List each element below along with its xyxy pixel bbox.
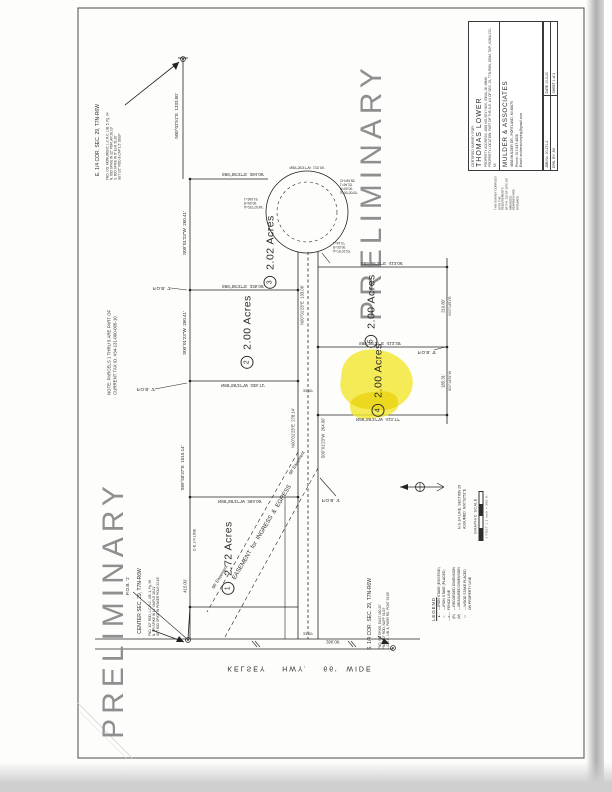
parcel-label-1: 12.72 Acres [222,521,235,595]
survey-annotation: CENTER SEC. 29, T7N-R6W [137,568,144,633]
parcel-label-5: 52.00 Acres [365,274,378,348]
survey-annotation: N89°58'37"W 335.71' [221,382,265,388]
parcel-label-3: 32.02 Acres [264,215,277,289]
parcel-number: 3 [264,276,277,289]
survey-annotation: N89°58'37"W 413.77' [356,416,400,422]
survey-annotation: P.O.B. '5' [418,349,437,355]
survey-annotation: NOTE: PARCELS 1 THRU 5 ARE PART OF CURRE… [106,295,117,395]
survey-annotation: 210.80' [440,299,445,313]
survey-annotation: 415.00' [182,579,187,593]
survey-annotation: Δ=76°31'23" R=33.00' L=44.07' [333,241,357,253]
survey-annotation: N89°58'37"W 394.06' [218,498,262,504]
survey-annotation: N00°02'51"E 1333.00' [174,93,180,138]
survey-annotation: 266.06' [326,639,340,644]
survey-annotation: E. 1/4 COR. SEC. 29, T7N-R6W [95,104,102,176]
survey-annotation: S89°58'37"E 1015.14' [180,446,186,491]
parcel-number: 2 [241,356,254,369]
parcel-number: 5 [365,335,378,348]
survey-annotation: THIS SURVEY COMPLIES WITH THE REQUIREMEN… [494,174,519,210]
survey-annotation: C-E 1/4 LINE [193,529,198,551]
survey-annotation: S00°01'23"W 260.41' [182,211,188,255]
survey-annotation: Δ=90°00'00" R=60.00' L=94.25' CH=84.85' [340,178,366,195]
survey-annotation: FND. RR SPIKE, EAST 150.29' FND. 1/2" RO… [378,579,390,649]
parcel-acreage: 2.00 Acres [365,274,377,329]
survey-annotation: N89°58'37"W 120.06' [289,165,324,170]
survey-annotation: N-S 1/4 LINE, SECTION 29 ASSUMED: N00°02… [457,471,466,529]
survey-annotation: P.O.B. '4' [322,497,341,503]
parcel-acreage: 2.72 Acres [222,521,234,576]
survey-annotation: N00°01'23"E 278.14' [290,408,295,448]
parcel-acreage: 2.00 Acres [241,295,253,350]
survey-annotation: FND. 1/2" ROD, L.C.R.C. LIB. 1, Pg. 98 N… [148,566,160,636]
survey-annotation: P.O.B. '2' [137,386,156,392]
survey-annotation: 33.00' [303,631,313,636]
parcel-acreage: 2.00 Acres [372,343,384,398]
survey-annotation: S89°58'37"E 335.06' [222,283,264,289]
survey-annotation: S00°01'23"W 264.00' [320,418,325,459]
survey-annotation: 185.31' [440,374,445,388]
parcel-number: 1 [222,582,235,595]
survey-annotation: FND. CO. MONUMENT, L.C.R.C. LIB. 5, Pg. … [106,100,123,180]
survey-annotation: N00°01'23"E 133.06' [299,285,304,325]
parcel-label-2: 22.00 Acres [241,295,254,369]
survey-annotation: S89°58'37"E 394.06' [222,171,264,177]
survey-annotation: 33.00' [303,388,313,393]
survey-annotation: S00°14'51"W [448,371,452,391]
survey-annotation: P.O.B. '1' [125,577,131,596]
survey-annotation: Δ=257°02'46" R=60.00' L=269.19' [244,197,270,209]
survey-annotation: 66' Easement [288,450,307,476]
annotation-layer: N00°02'51"E 1333.00'S89°58'37"E 394.06'S… [0,0,612,792]
survey-annotation: N00°14'51"E [448,296,452,315]
parcel-acreage: 2.02 Acres [264,215,276,270]
survey-annotation: S. 1/4 COR. SEC. 29, T7N-R6W [367,578,374,650]
parcel-label-4: 42.00 Acres [372,343,385,417]
survey-annotation: S89°58'37"E 413.06' [361,260,403,266]
survey-annotation: P.O.B. '3' [153,285,172,291]
survey-annotation: S00°01'23"W 260.41' [182,311,188,355]
survey-annotation: KELSEY HWY. 66' WIDE [227,663,372,672]
parcel-number: 4 [372,404,385,417]
scanned-survey-sheet: PRELIMINARY PRELIMINARY CERTIFIED SURVEY… [0,0,612,792]
